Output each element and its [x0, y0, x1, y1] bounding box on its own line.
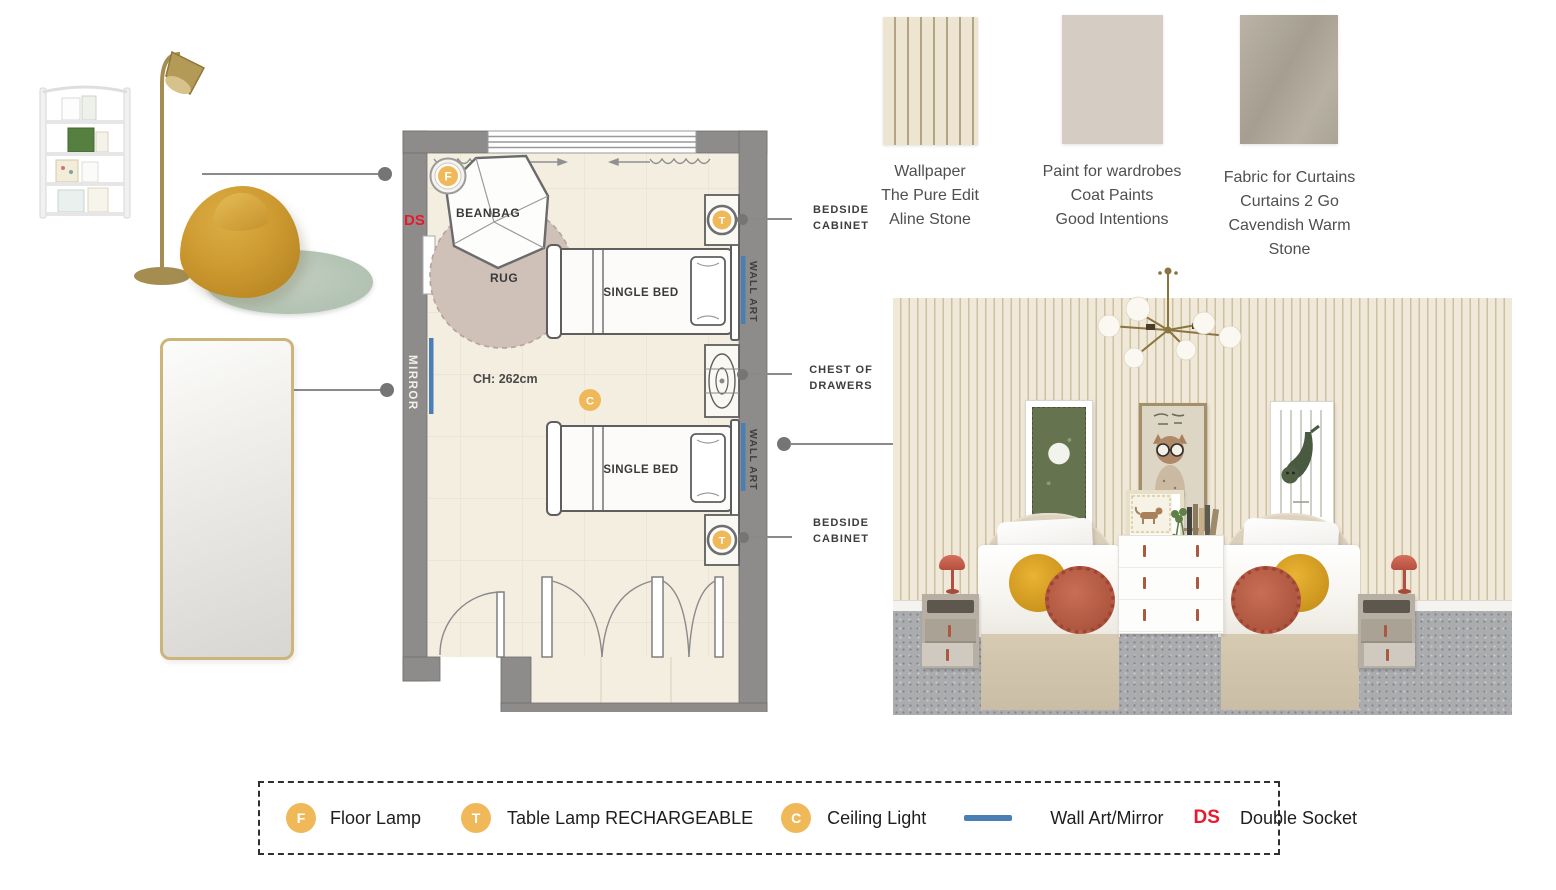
- wall-art-2-label: WALL ART: [747, 429, 759, 491]
- wallpaper-swatch: [883, 17, 978, 145]
- plan-bedside-cabinet-top: T: [705, 195, 739, 245]
- wall-art-mirror-legend-icon: [964, 815, 1012, 821]
- ceiling-light-legend-icon: C: [781, 803, 811, 833]
- caption-line: Fabric for Curtains: [1202, 166, 1377, 190]
- ceiling-light-icon: C: [579, 389, 601, 411]
- double-socket-legend-icon: DS: [1194, 807, 1220, 829]
- connector-mirror-dot: [380, 383, 394, 397]
- connector-beanbag-line: [202, 173, 382, 175]
- callout-text: BEDSIDE: [796, 515, 886, 531]
- svg-text:F: F: [444, 170, 451, 184]
- plan-window: [488, 131, 696, 153]
- plan-bedside-cabinet-bottom: T: [705, 515, 739, 565]
- render-bedside-cabinet-left: [922, 594, 979, 668]
- plan-bed-2: SINGLE BED: [547, 420, 739, 517]
- callout-text: DRAWERS: [796, 378, 886, 394]
- connector-render-line: [790, 443, 893, 445]
- caption-line: Stone: [1202, 238, 1377, 262]
- render-bedbase-right: [1221, 634, 1359, 710]
- render-red-cushion-right: [1231, 566, 1301, 634]
- chandelier: [1096, 266, 1241, 368]
- paint-caption: Paint for wardrobes Coat Paints Good Int…: [1022, 160, 1202, 232]
- room-render: [893, 298, 1512, 715]
- callout-text: CHEST OF: [796, 362, 886, 378]
- connector-chest-line: [748, 373, 792, 375]
- render-art-botanical: [1025, 400, 1093, 530]
- green-book: [68, 128, 94, 152]
- table-lamp-icon-top: T: [719, 215, 726, 227]
- render-red-cushion-left: [1045, 566, 1115, 634]
- render-art-sloth: [1270, 401, 1334, 528]
- chest-drawer: [1119, 600, 1223, 632]
- mirror-image: [160, 338, 294, 660]
- connector-bedside-top-dot: [737, 214, 748, 225]
- single-bed-1-label: SINGLE BED: [603, 287, 678, 299]
- double-socket-legend-label: Double Socket: [1240, 808, 1357, 829]
- table-lamp-icon-bottom: T: [719, 535, 726, 547]
- double-socket-label: DS: [404, 212, 425, 229]
- callout-text: CABINET: [796, 531, 886, 547]
- rug-label: RUG: [490, 271, 518, 285]
- floor-lamp-legend-icon: F: [286, 803, 316, 833]
- book-rack-image: [38, 84, 132, 220]
- wallpaper-caption: Wallpaper The Pure Edit Aline Stone: [845, 160, 1015, 232]
- render-chest-of-drawers: [1118, 535, 1224, 634]
- callout-chest-of-drawers: CHEST OF DRAWERS: [796, 362, 886, 394]
- mirror-label: MIRROR: [406, 355, 418, 411]
- connector-bedside-bottom-line: [749, 536, 792, 538]
- caption-line: Aline Stone: [845, 208, 1015, 232]
- caption-line: Good Intentions: [1022, 208, 1202, 232]
- render-bedside-cabinet-right: [1358, 594, 1415, 668]
- floor-lamp-icon: F: [431, 159, 466, 194]
- ceiling-height-label: CH: 262cm: [473, 372, 538, 386]
- connector-bedside-top-line: [748, 218, 792, 220]
- plan-bed-1: SINGLE BED: [547, 243, 739, 340]
- caption-line: The Pure Edit: [845, 184, 1015, 208]
- connector-beanbag-dot: [378, 167, 392, 181]
- render-table-lamp-right: [1391, 555, 1417, 595]
- fabric-swatch: [1240, 15, 1338, 144]
- caption-line: Coat Paints: [1022, 184, 1202, 208]
- render-table-lamp-left: [939, 555, 965, 595]
- caption-line: Paint for wardrobes: [1022, 160, 1202, 184]
- render-bedbase-left: [981, 634, 1119, 710]
- connector-mirror-line: [292, 389, 384, 391]
- legend: F Floor Lamp T Table Lamp RECHARGEABLE C…: [258, 781, 1280, 855]
- plan-wall-art-strip-1: [741, 256, 746, 324]
- connector-bedside-bottom-dot: [738, 532, 749, 543]
- connector-render-dot: [777, 437, 791, 451]
- table-lamp-legend-icon: T: [461, 803, 491, 833]
- wall-art-mirror-legend-label: Wall Art/Mirror: [1050, 808, 1163, 829]
- fabric-caption: Fabric for Curtains Curtains 2 Go Cavend…: [1202, 166, 1377, 262]
- caption-line: Wallpaper: [845, 160, 1015, 184]
- plan-wall-art-strip-2: [741, 423, 746, 491]
- beanbag-label: BEANBAG: [456, 206, 520, 220]
- plan-alcove-floor: [531, 657, 739, 703]
- floor-plan: BEANBAG RUG F DS MIRROR CH: 262cm C: [398, 126, 770, 712]
- plan-chest-of-drawers: [705, 345, 739, 417]
- single-bed-2-label: SINGLE BED: [603, 464, 678, 476]
- wall-art-1-label: WALL ART: [747, 261, 759, 323]
- callout-bedside-cabinet-bottom: BEDSIDE CABINET: [796, 515, 886, 547]
- mood-board: BEANBAG RUG F DS MIRROR CH: 262cm C: [0, 0, 1556, 890]
- chest-drawer: [1119, 568, 1223, 600]
- table-lamp-legend-label: Table Lamp RECHARGEABLE: [507, 808, 753, 829]
- chest-drawer: [1119, 536, 1223, 568]
- svg-text:C: C: [586, 396, 594, 408]
- connector-chest-dot: [737, 369, 748, 380]
- ceiling-light-legend-label: Ceiling Light: [827, 808, 926, 829]
- plan-mirror-strip: [429, 338, 434, 414]
- paint-swatch: [1062, 15, 1163, 144]
- caption-line: Curtains 2 Go: [1202, 190, 1377, 214]
- caption-line: Cavendish Warm: [1202, 214, 1377, 238]
- floor-lamp-legend-label: Floor Lamp: [330, 808, 421, 829]
